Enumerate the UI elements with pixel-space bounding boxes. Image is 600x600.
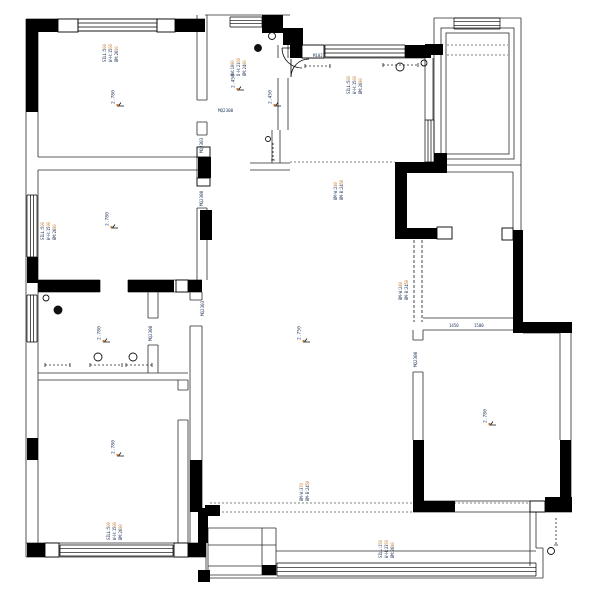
study-downlight-light-symbol [43,295,49,301]
electrical-layer [45,63,558,545]
foyer-lamp-light-symbol [255,45,262,52]
annotation-line: BM-W:240 [398,282,403,300]
elevation-marker-room-mid-left: 2.780 [105,212,119,228]
elevation-value: 2.750 [297,326,303,340]
window-hatch [277,563,536,576]
annotation-stack-entry-note: DW:1000D-H:2100BM:2400 [230,58,247,76]
annotation-line: BM-W:240 [333,182,338,200]
hall-downlight-light-symbol [266,137,271,142]
elevation-marker-room-right: 2.780 [483,409,497,425]
elevation-accent-mark [103,340,105,342]
elevation-accent-mark [117,454,119,456]
annotation-line: BM-B:2450 [339,179,344,200]
window-hatch [60,545,173,556]
annotation-line: W-H:1500 [46,222,51,240]
elevation-accent-mark [489,423,491,425]
annotation-stack-window-top-left: SILL:500W-H:1500BM:2600 [102,44,119,62]
opening-tag-bedroom-right-door: MQ2300 [413,351,418,367]
elevation-accent-mark [303,340,305,342]
elevation-marker-room-top-left: 2.780 [111,90,125,106]
annotation-stack-beam-living-bottom: BM-W:370BM-B:2450 [299,480,310,501]
labels-layer: 2.7802.4502.4502.7802.7802.7802.7502.780… [40,44,496,558]
floor-plan-canvas: 2.7802.4502.4502.7802.7802.7802.7502.780… [0,0,600,600]
annotation-line: W-H:1500 [108,44,113,62]
opening-tag-study-door: MQ2300 [148,325,153,341]
annotation-line: SILL:500 [106,522,111,540]
annotation-stack-window-mid-left: SILL:500W-H:1500BM:2600 [40,222,57,240]
elevation-accent-mark [274,104,276,106]
window-hatch [454,18,500,29]
study-lamp-light-symbol [54,306,62,314]
window-hatch [325,45,405,57]
window-hatch [78,19,157,31]
annotation-line: SILL:150 [378,540,383,558]
annotation-line: BM:2600 [118,524,123,540]
dining-downlight-1-light-symbol [396,63,404,71]
annotation-line: SILL:500 [346,76,351,94]
opening-tag-hall-door-upper: MQ2303 [199,137,204,153]
dining-downlight-2-light-symbol [421,60,427,66]
windows-layer [27,17,536,576]
small-tag-entry-door-tag: M1021 [313,53,326,58]
annotation-line: BM:2600 [52,224,57,240]
window-hatch [27,295,37,342]
foyer-downlight-light-symbol [269,33,276,40]
annotation-stack-window-balcony: SILL:150W-H:2350BM:2600 [378,540,395,558]
opening-tag-hall-door-lower: MQ2300 [199,190,204,206]
annotation-stack-beam-duct: BM-W:240BM-B:2450 [398,279,409,300]
annotation-line: BM:2400 [242,60,247,76]
annotation-line: D-H:2100 [236,58,241,76]
window-hatch [425,120,434,162]
columns-layer [45,19,545,557]
elevation-value: 2.780 [97,326,103,340]
annotation-line: SILL:500 [102,44,107,62]
annotation-line: BM-B:2450 [404,279,409,300]
dashed-duct-layer [414,240,422,322]
annotation-line: BM-W:370 [299,483,304,501]
opening-tag-corridor-door: MQ2303 [200,300,205,316]
elevation-value: 2.450 [268,90,274,104]
elevation-marker-living-room: 2.750 [297,326,311,342]
annotation-line: BM-B:2450 [305,480,310,501]
elevation-accent-mark [237,88,239,90]
small-tag-dim-tag-2: 1500 [474,323,484,328]
window-hatch [230,17,262,27]
opening-tag-hall-opening: MQ2300 [218,108,234,113]
lights-layer [43,33,555,555]
elevation-accent-mark [111,226,113,228]
elevation-accent-mark [117,104,119,106]
elevation-marker-foyer-b: 2.450 [268,90,282,106]
annotation-stack-window-top-right: SILL:500W-H:1500BM:2600 [346,76,363,94]
window-hatch [27,195,37,257]
elevation-value: 2.780 [105,212,111,226]
annotation-line: SILL:500 [40,222,45,240]
elevation-value: 2.780 [483,409,489,423]
study-downlight-3-light-symbol [129,353,137,361]
annotation-line: BM:2600 [390,542,395,558]
annotation-stack-beam-living-top: BM-W:240BM-B:2450 [333,179,344,200]
annotation-line: BM:2600 [358,78,363,94]
elevation-value: 2.780 [111,90,117,104]
elevation-value: 2.780 [111,440,117,454]
floor-plan-drawing: 2.7802.4502.4502.7802.7802.7802.7502.780… [0,0,600,600]
elevation-marker-room-bottom-left: 2.780 [111,440,125,456]
small-tag-dim-tag-1: 1450 [449,323,459,328]
study-downlight-2-light-symbol [94,353,102,361]
annotation-line: W-H:1500 [352,76,357,94]
annotation-line: W-H:1500 [112,522,117,540]
annotation-line: DW:1000 [230,60,235,76]
balcony-downlight-light-symbol [548,548,555,555]
annotation-line: W-H:2350 [384,540,389,558]
elevation-marker-room-small-left: 2.780 [97,326,111,342]
dotted-lines-layer [210,45,530,512]
annotation-line: BM:2600 [114,46,119,62]
annotation-stack-window-bottom-left: SILL:500W-H:1500BM:2600 [106,522,123,540]
